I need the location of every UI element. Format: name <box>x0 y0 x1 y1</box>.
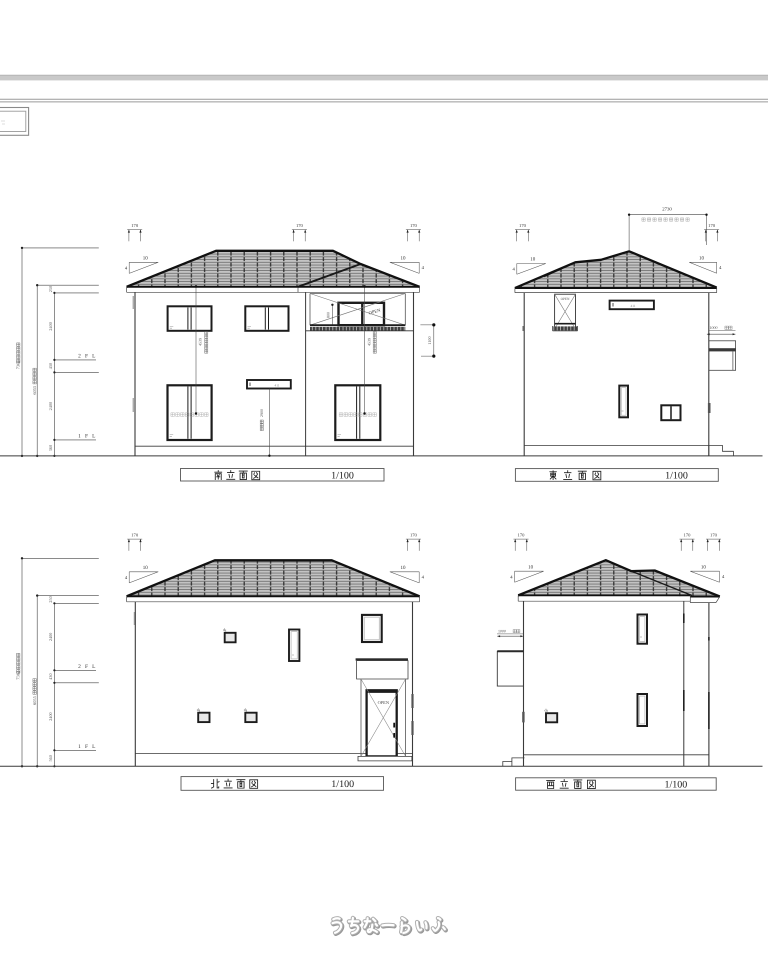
svg-text:10: 10 <box>699 256 705 262</box>
svg-text:d: d <box>244 707 246 712</box>
svg-text:250: 250 <box>48 286 53 292</box>
svg-text:170: 170 <box>131 533 139 538</box>
svg-text:2730: 2730 <box>662 207 672 213</box>
svg-text:411: 411 <box>275 383 280 387</box>
svg-text:OPEN: OPEN <box>561 297 570 301</box>
svg-text:d: d <box>545 707 547 712</box>
svg-text:430: 430 <box>48 673 53 679</box>
svg-text:10: 10 <box>530 257 536 263</box>
svg-text:560: 560 <box>48 445 53 451</box>
svg-text:1/100: 1/100 <box>331 471 354 482</box>
svg-text:6055: 6055 <box>32 695 37 705</box>
svg-text:2 F L: 2 F L <box>78 664 97 670</box>
svg-text:1 F L: 1 F L <box>78 744 97 750</box>
svg-text:2 F L: 2 F L <box>78 354 97 360</box>
svg-text:2900: 2900 <box>259 409 264 417</box>
svg-text:800: 800 <box>326 312 331 318</box>
svg-text:10: 10 <box>143 256 149 262</box>
svg-text:2400: 2400 <box>48 712 53 720</box>
svg-text:10: 10 <box>401 565 407 571</box>
svg-text:10: 10 <box>528 564 534 570</box>
svg-text:1/100: 1/100 <box>665 780 688 791</box>
svg-text:1100: 1100 <box>427 336 432 344</box>
svg-text:10: 10 <box>701 564 707 570</box>
svg-text:170: 170 <box>710 533 718 538</box>
svg-text:560: 560 <box>48 755 53 761</box>
svg-text:6055: 6055 <box>32 385 37 395</box>
svg-text:430: 430 <box>48 363 53 369</box>
svg-text:170: 170 <box>410 533 418 538</box>
svg-text:OPEN: OPEN <box>378 700 390 705</box>
svg-text:1000: 1000 <box>710 325 718 330</box>
svg-text:170: 170 <box>131 223 139 228</box>
svg-text:170: 170 <box>519 223 527 228</box>
svg-text:1 F L: 1 F L <box>78 434 97 440</box>
svg-text:10: 10 <box>401 256 407 262</box>
svg-text:1/100: 1/100 <box>331 779 354 790</box>
svg-text:2400: 2400 <box>48 633 53 641</box>
svg-text:170: 170 <box>518 533 526 538</box>
svg-text:4539: 4539 <box>366 338 371 346</box>
svg-text:1/100: 1/100 <box>665 471 688 482</box>
svg-text:d: d <box>223 627 225 632</box>
svg-text:170: 170 <box>296 223 304 228</box>
svg-text:170: 170 <box>410 223 418 228</box>
svg-text:170: 170 <box>684 533 692 538</box>
svg-text:2400: 2400 <box>48 322 53 330</box>
svg-text:411: 411 <box>631 304 636 308</box>
svg-text:d: d <box>197 707 199 712</box>
svg-text:250: 250 <box>48 596 53 602</box>
svg-text:10: 10 <box>143 565 149 571</box>
svg-text:1000: 1000 <box>498 628 506 633</box>
svg-text:170: 170 <box>708 223 716 228</box>
svg-text:2400: 2400 <box>48 402 53 410</box>
svg-text:4539: 4539 <box>198 338 203 346</box>
